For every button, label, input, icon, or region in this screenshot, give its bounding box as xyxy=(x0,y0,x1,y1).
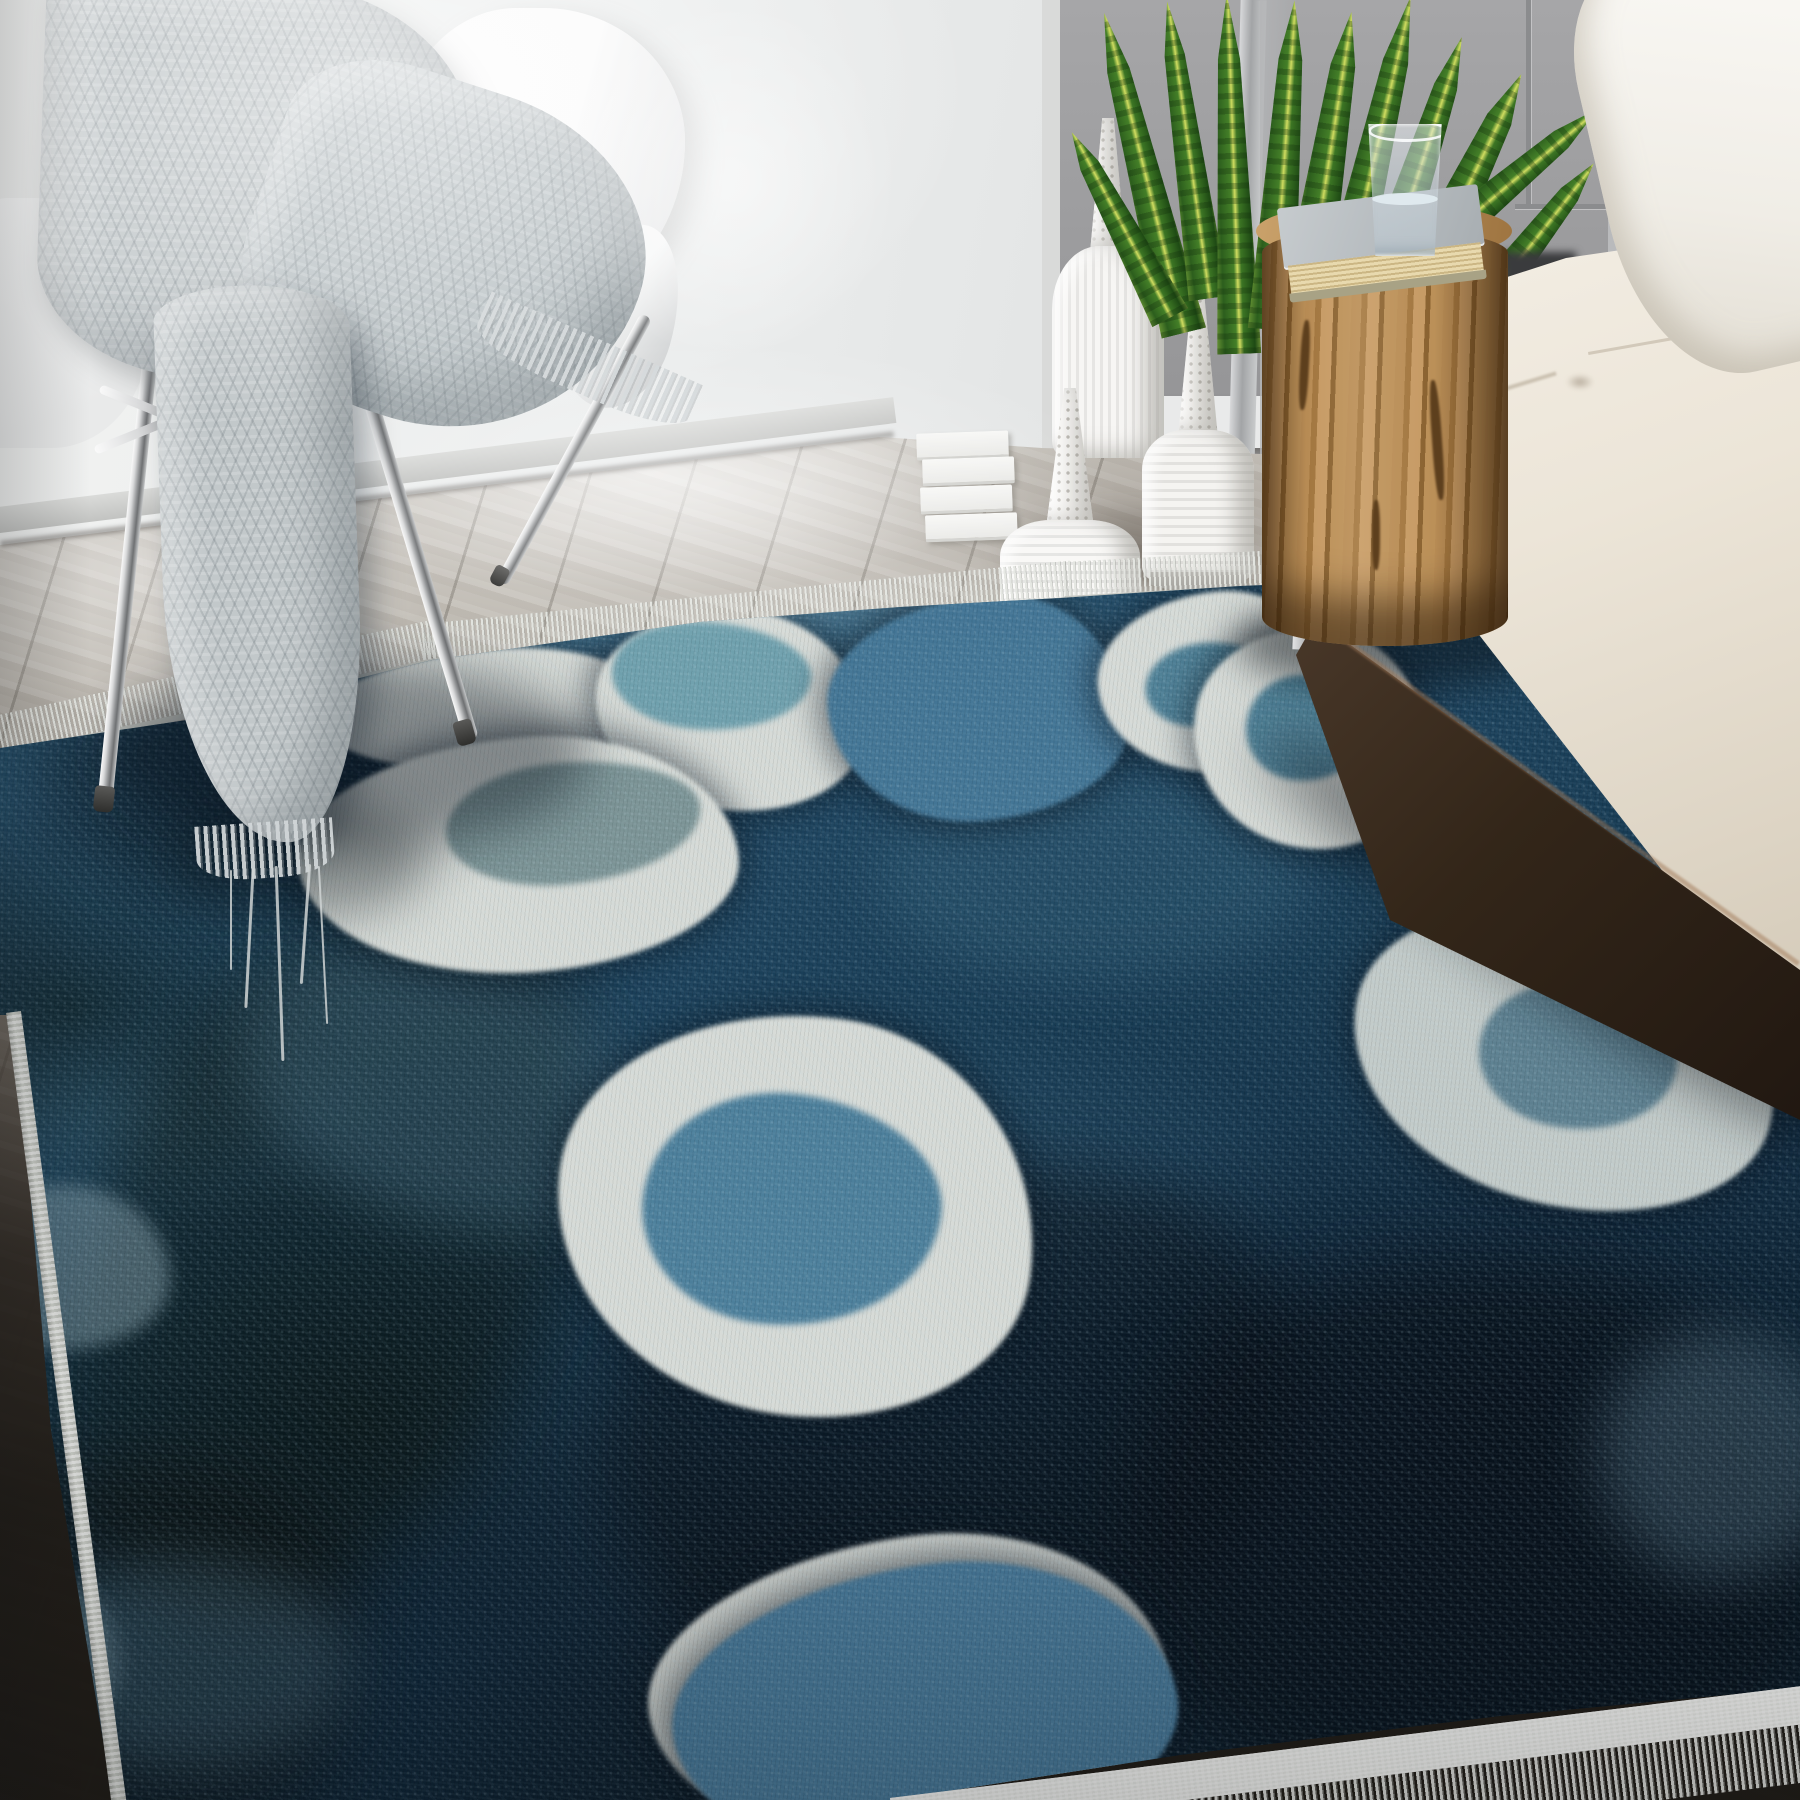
sofa-tuft xyxy=(1566,374,1594,390)
living-room-rug-photo xyxy=(0,0,1800,1800)
stump-knot xyxy=(1372,500,1380,570)
tassel-strand xyxy=(230,870,232,970)
white-book xyxy=(920,484,1013,514)
water-line xyxy=(1372,193,1438,205)
chair-foot-cap xyxy=(93,785,116,813)
water-glass xyxy=(1366,124,1444,256)
vase-neck xyxy=(1046,388,1094,528)
